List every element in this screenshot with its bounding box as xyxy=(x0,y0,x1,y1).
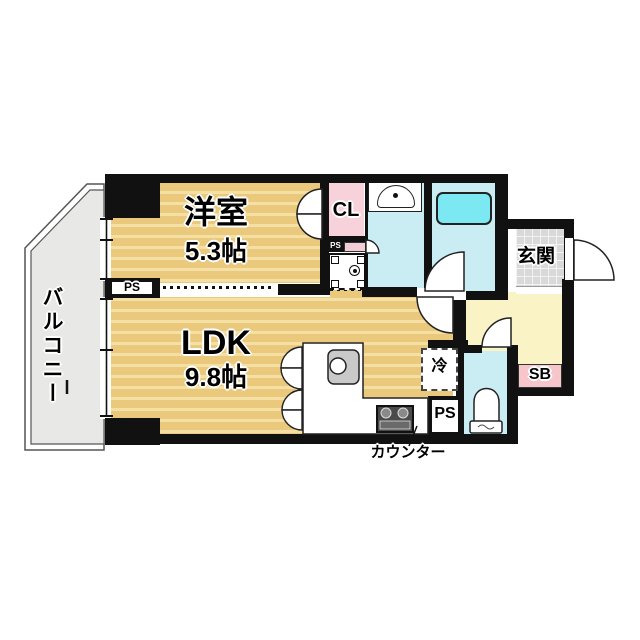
washroom-door-leaf xyxy=(344,242,366,252)
entrance-step xyxy=(516,286,564,294)
entrance-door-arc xyxy=(574,240,614,280)
closet-label: CL xyxy=(328,200,364,221)
washer-pan-corner xyxy=(357,256,365,264)
pipe-space-small-box: PS xyxy=(327,239,344,252)
refrigerator-space-box: 冷 xyxy=(421,348,458,391)
wall-washroom-left xyxy=(365,183,368,293)
refrigerator-label: 冷 xyxy=(423,359,456,376)
shoebox-box: SB xyxy=(518,364,562,388)
ldk-area: 9.8帖 xyxy=(110,364,322,391)
washer-pan-corner xyxy=(331,256,339,264)
entrance-label: 玄関 xyxy=(508,247,564,267)
wall-right-lower xyxy=(562,279,574,390)
wall-washroom-bathroom xyxy=(424,183,432,291)
washer-drain-dot xyxy=(353,269,357,273)
ldk-label: LDK xyxy=(110,326,322,362)
shoebox-label: SB xyxy=(519,367,561,384)
toilet-floor xyxy=(464,351,507,434)
balcony-label: バルコニー xyxy=(40,286,62,406)
washer-pan-corner xyxy=(331,280,339,288)
wall-top xyxy=(105,174,507,183)
wall-closet-left xyxy=(320,176,329,290)
pipe-space-small-label: PS xyxy=(330,241,341,250)
wall-bathroom-right xyxy=(495,174,508,300)
counter-label: カウンター xyxy=(360,445,456,461)
wall-toilet-right xyxy=(507,345,518,444)
bathtub-icon xyxy=(436,192,492,225)
doorway-bathroom xyxy=(427,291,466,300)
western-room-label: 洋室 xyxy=(110,196,322,230)
wall-bathroom-bottom xyxy=(466,291,508,300)
entrance-door-leaf xyxy=(564,237,574,281)
floorplan: バルコニー CL xyxy=(0,0,640,640)
pipe-space-wall-label: PS xyxy=(112,281,152,294)
wall-washroom-bottom xyxy=(362,287,417,297)
pipe-space-kitchen-label: PS xyxy=(432,406,458,423)
western-room-area: 5.3帖 xyxy=(110,238,322,265)
pipe-space-wall-box: PS xyxy=(111,281,153,295)
partition-dashed-line xyxy=(163,286,275,289)
faucet-dot-icon xyxy=(393,193,398,198)
pipe-space-kitchen-box: PS xyxy=(428,396,462,436)
